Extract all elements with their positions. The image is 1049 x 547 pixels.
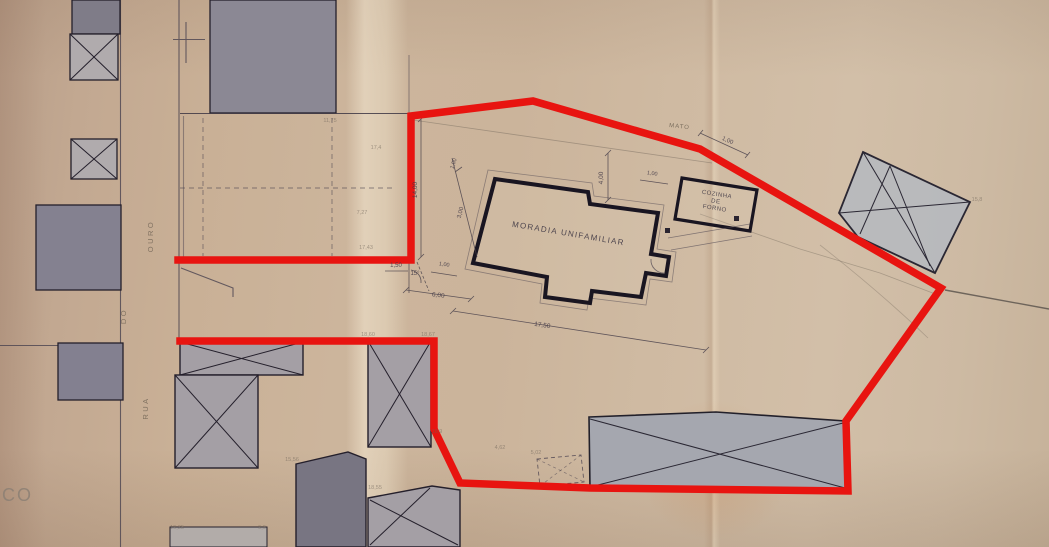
building-topleft-and-courtyard [180,0,412,256]
svg-text:5,02: 5,02 [531,450,542,456]
svg-text:14,00: 14,00 [412,181,419,198]
svg-text:DO: DO [119,308,128,324]
svg-text:18,67: 18,67 [421,332,435,338]
site-plan-photo: MORADIA UNIFAMILIAR COZINHA DE FORNO OUR… [0,0,1049,547]
svg-text:18,9: 18,9 [432,429,443,435]
annex-dashed [537,455,584,486]
svg-text:15,56: 15,56 [285,457,299,463]
site-plan-drawing: MORADIA UNIFAMILIAR COZINHA DE FORNO OUR… [0,0,1049,547]
svg-text:1,50: 1,50 [390,263,402,269]
svg-text:4,00: 4,00 [598,171,605,184]
svg-text:17,4: 17,4 [371,145,382,151]
outbuilding [665,178,757,250]
svg-text:RUA: RUA [141,396,150,419]
building-south [589,412,847,490]
svg-text:7,27: 7,27 [357,210,368,216]
svg-text:18,55: 18,55 [368,485,382,491]
svg-text:19,35: 19,35 [170,525,184,531]
main-building [465,170,676,310]
svg-text:9,6: 9,6 [258,525,266,531]
svg-text:1,00: 1,00 [438,261,449,268]
corner-partial-text: CO [2,485,33,505]
svg-text:17,50: 17,50 [534,321,552,330]
svg-text:4,62: 4,62 [495,445,506,451]
svg-text:15,8: 15,8 [972,197,983,203]
main-building-walls [473,179,669,303]
svg-text:6,00: 6,00 [431,291,445,300]
svg-text:1,00: 1,00 [646,170,657,177]
area-label: MATO [669,123,690,131]
svg-text:15°: 15° [410,271,420,277]
svg-text:18,60: 18,60 [361,332,375,338]
street-name: OURO DO RUA [119,220,155,420]
svg-text:3,00: 3,00 [457,206,466,219]
buildings-west [36,0,123,400]
svg-text:1,00: 1,00 [721,136,735,147]
svg-text:17,43: 17,43 [359,245,373,251]
svg-text:OURO: OURO [146,220,155,253]
buildings-southwest [170,341,460,547]
svg-text:11,75: 11,75 [323,118,336,124]
svg-text:1,00: 1,00 [450,158,459,170]
building-east [839,152,970,273]
